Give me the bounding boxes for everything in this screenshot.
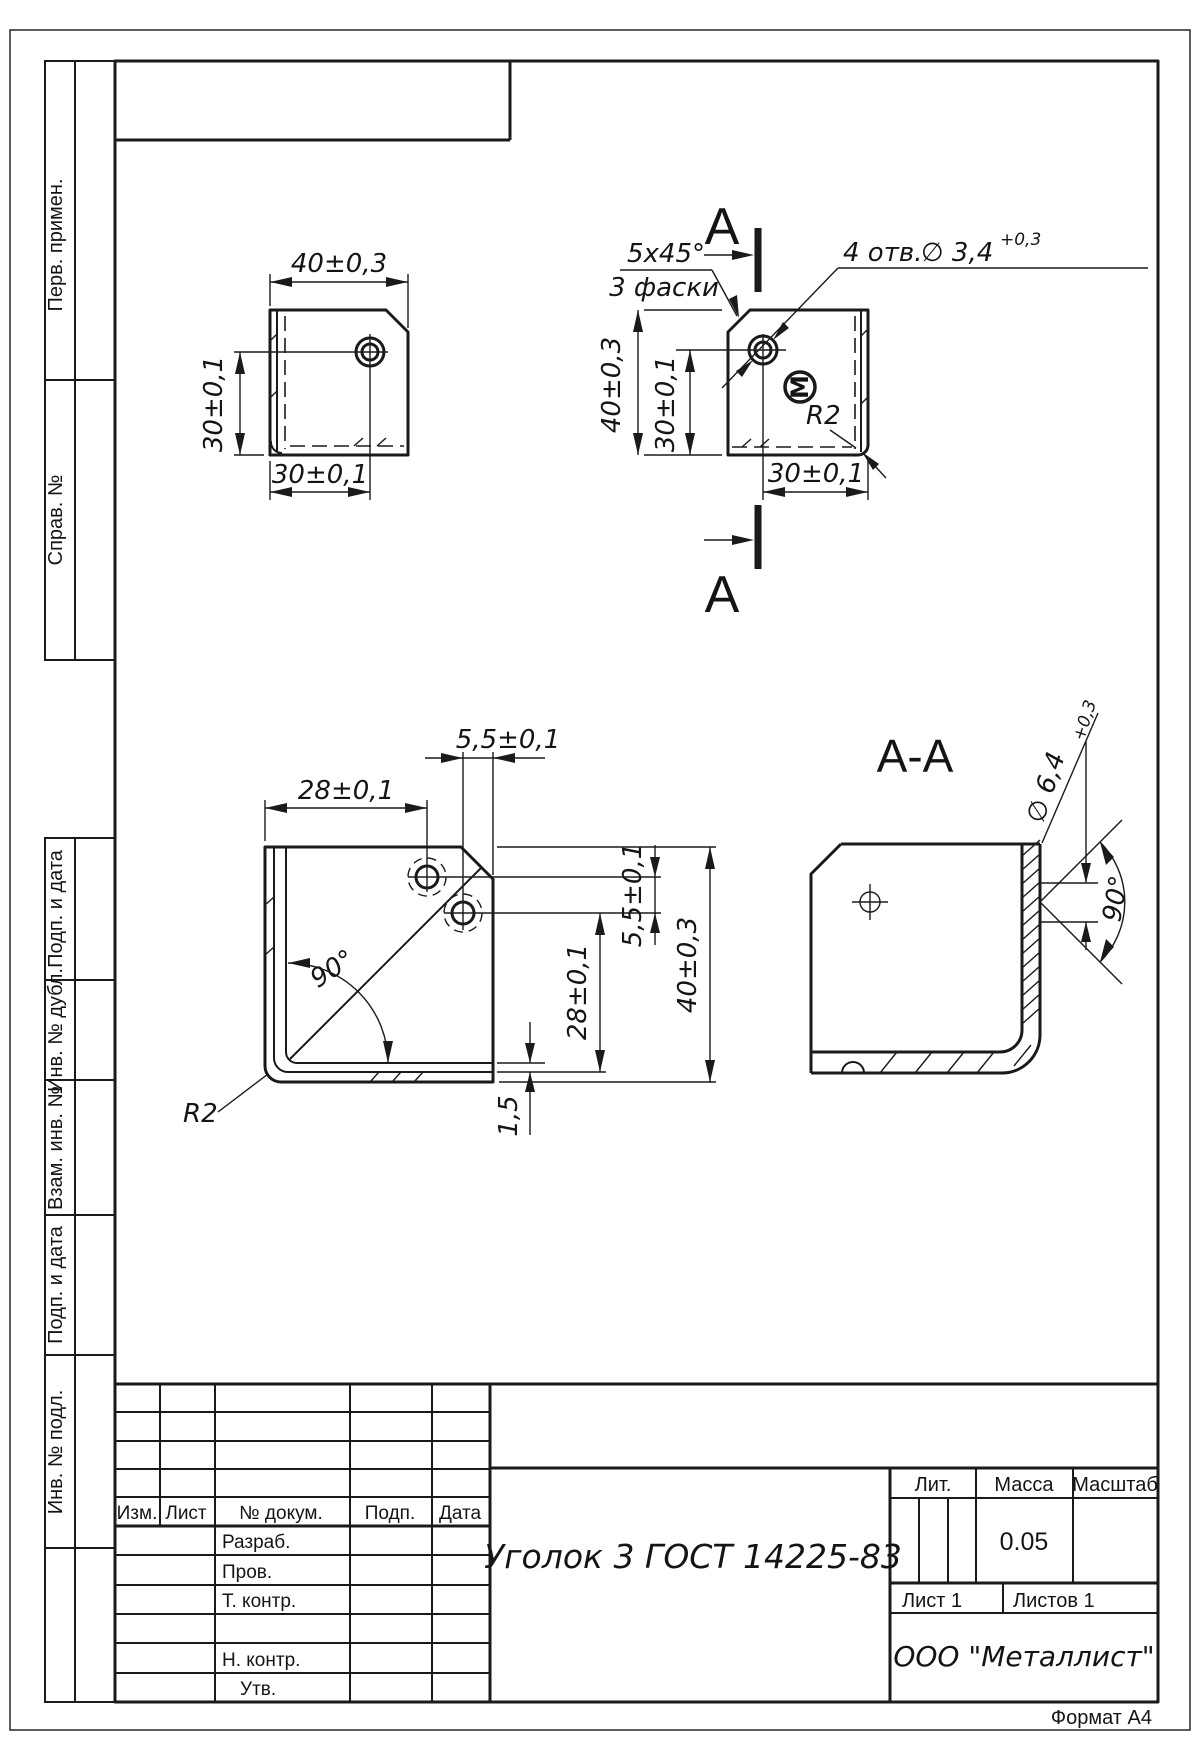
dim-top-text: 28±0,1 (298, 776, 394, 806)
dim-bottom-text: 30±0,1 (272, 460, 368, 490)
holes-tol-text: +0,3 (1000, 230, 1041, 250)
margin-label-podp-data-1: Подп. и дата (45, 849, 67, 968)
arrowhead (235, 352, 245, 374)
arrowhead (405, 803, 427, 813)
section-hatching (880, 840, 1040, 1073)
holes-count-text: 4 отв. (843, 238, 922, 268)
countersink-tol-text: +0,3 (1069, 698, 1101, 743)
arrowhead (650, 857, 660, 877)
arrowhead (1100, 842, 1114, 865)
arrowhead (685, 350, 695, 372)
chamfer-note-text: 3 фаски (609, 273, 719, 303)
arrowhead (773, 322, 789, 340)
arrowhead (633, 310, 643, 332)
tb-col-list: Лист (165, 1503, 207, 1524)
margin-label-vzam-inv: Взам. инв. № (45, 1086, 67, 1210)
margin-boxes: Перв. примен. Справ. № Подп. и дата Инв.… (45, 61, 115, 1702)
tb-sheets: Листов 1 (1013, 1590, 1095, 1612)
tb-col-izm: Изм. (117, 1503, 158, 1524)
outline-left (811, 844, 841, 1073)
arrowhead (595, 913, 605, 935)
view-section-aa: А-А 90° (811, 698, 1135, 1073)
drawing-canvas: Перв. примен. Справ. № Подп. и дата Инв.… (0, 0, 1200, 1760)
tb-company: ООО "Металлист" (893, 1640, 1154, 1673)
arrowhead (1081, 863, 1091, 883)
arrowhead (270, 277, 292, 287)
arrowhead (383, 1041, 393, 1063)
margin-label-inv-dubl: Инв. № дубл. (45, 968, 67, 1092)
holes-dia-text: ∅ 3,4 (921, 238, 993, 268)
tb-tkontr: Т. контр. (222, 1591, 296, 1612)
title-block: Изм. Лист № докум. Подп. Дата Разраб. Пр… (115, 1384, 1158, 1702)
arrowhead (736, 360, 753, 377)
arrowhead (732, 535, 754, 545)
arrowhead (288, 958, 310, 968)
countersink-angle-text: 90° (1097, 873, 1135, 924)
dim-height-text: 40±0,3 (597, 337, 627, 433)
dim-hole-h-text: 30±0,1 (768, 459, 864, 489)
hidden-chamfer-tick (377, 438, 386, 446)
dim-width-text: 40±0,3 (291, 249, 387, 279)
margin-label-inv-podl: Инв. № подл. (45, 1390, 67, 1515)
tb-col-podp: Подп. (365, 1503, 415, 1524)
outline-outer (811, 844, 1040, 1073)
arrowhead (1100, 939, 1114, 962)
tb-razrab: Разраб. (222, 1532, 290, 1553)
part-outline (270, 310, 408, 455)
dim-right-40-text: 40±0,3 (673, 917, 703, 1013)
section-letter-top: А (705, 198, 740, 256)
countersink-dia-text: ∅ 6,4 (1021, 749, 1072, 827)
arrowhead (265, 803, 287, 813)
arrowhead (386, 277, 408, 287)
view-top-right: М А А 5x45° 3 фаски 4 отв. ∅ 3,4 +0,3 R2 (597, 198, 1148, 624)
tb-mass-label: Масса (994, 1474, 1054, 1496)
arrowhead (685, 433, 695, 455)
margin-label-perv-primen: Перв. примен. (45, 179, 67, 312)
arrowhead (729, 295, 739, 318)
margin-label-sprav-no: Справ. № (45, 475, 67, 566)
dim-right-55-text: 5,5±0,1 (618, 843, 648, 947)
drawing-sheet: Перв. примен. Справ. № Подп. и дата Инв.… (0, 0, 1200, 1760)
section-letter-bottom: А (705, 566, 740, 624)
arrowhead (705, 847, 715, 869)
margin-group-1 (45, 61, 115, 660)
radius-text: R2 (806, 401, 841, 431)
tb-prov: Пров. (222, 1562, 272, 1583)
tb-mass-value: 0.05 (1000, 1528, 1049, 1556)
chamfer-dim-text: 5x45° (627, 239, 705, 269)
radius-text: R2 (183, 1099, 218, 1129)
arrowhead (705, 1060, 715, 1082)
section-title: А-А (877, 730, 954, 782)
outline-inner (811, 844, 1022, 1052)
view-bottom-left: 28±0,1 5,5±0,1 90° R2 28±0,1 5,5±0,1 40±… (183, 725, 716, 1137)
hidden-chamfer-tick (760, 439, 769, 447)
view-top-left: 40±0,3 30±0,1 30±0,1 (199, 249, 408, 500)
arrowhead (650, 913, 660, 933)
arrowhead (1081, 922, 1091, 942)
dim-right-28-text: 28±0,1 (563, 944, 593, 1040)
dim-top-small-text: 5,5±0,1 (456, 725, 560, 755)
arrowhead (633, 433, 643, 455)
tb-nkontr: Н. контр. (222, 1650, 300, 1671)
arrowhead (595, 1050, 605, 1072)
dim-hole-v-text: 30±0,1 (651, 356, 681, 452)
tb-sheet: Лист 1 (902, 1590, 962, 1612)
hidden-chamfer-tick (354, 438, 363, 446)
marking-symbol-letter: М (786, 375, 814, 399)
leader-line (830, 430, 856, 448)
format-note: Формат А4 (1051, 1707, 1152, 1729)
arrowhead (235, 433, 245, 455)
leader-line (218, 1074, 268, 1112)
arrowhead (525, 1043, 535, 1063)
dim-height-text: 30±0,1 (199, 356, 229, 452)
tb-lit-label: Лит. (915, 1474, 952, 1496)
margin-label-podp-data-2: Подп. и дата (45, 1225, 67, 1344)
tb-col-ndokum: № докум. (239, 1503, 322, 1524)
tb-scale-label: Масштаб (1072, 1474, 1158, 1496)
tb-utv: Утв. (240, 1679, 276, 1700)
tb-col-data: Дата (439, 1503, 482, 1524)
flange-hole-arc (842, 1062, 864, 1073)
tb-designation: Уголок 3 ГОСТ 14225-83 (484, 1537, 902, 1576)
thickness-text: 1,5 (494, 1095, 524, 1136)
hidden-chamfer-tick (742, 439, 751, 447)
